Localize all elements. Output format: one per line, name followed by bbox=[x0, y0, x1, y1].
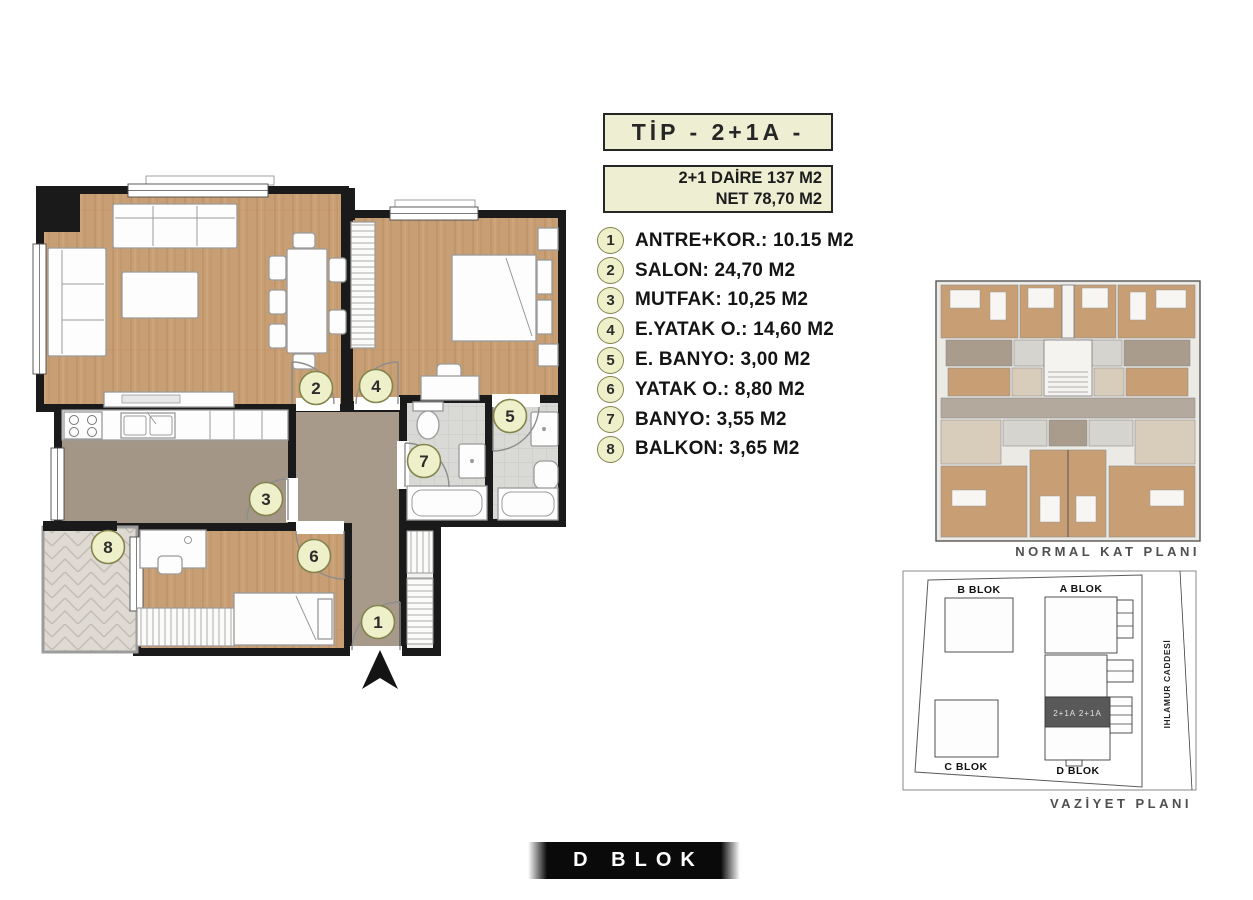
bathtub bbox=[407, 486, 487, 520]
legend-num: 5 bbox=[597, 347, 624, 374]
main-floor-plan: 1 2 3 4 5 6 7 8 bbox=[33, 176, 562, 689]
highlight-unit: 2+1A 2+1A bbox=[1045, 697, 1110, 727]
legend-label: ANTRE+KOR.: 10.15 M2 bbox=[635, 230, 854, 252]
block-a-label: A BLOK bbox=[1060, 583, 1103, 595]
legend-row: 6 YATAK O.: 8,80 M2 bbox=[597, 375, 897, 405]
key-plan: NORMAL KAT PLANI bbox=[936, 281, 1200, 559]
site-plan: B BLOK A BLOK 2+1A 2+1A D BLOK C BLOK IH… bbox=[903, 571, 1196, 811]
block-b-label: B BLOK bbox=[957, 584, 1000, 596]
svg-text:1: 1 bbox=[373, 613, 382, 632]
svg-text:2+1A 2+1A: 2+1A 2+1A bbox=[1053, 709, 1102, 718]
sofa-left bbox=[48, 248, 106, 356]
wall-step bbox=[341, 188, 355, 220]
block-d-label: D BLOK bbox=[1056, 765, 1099, 777]
stairwell bbox=[1044, 340, 1092, 396]
legend-row: 7 BANYO: 3,55 M2 bbox=[597, 405, 897, 435]
badge-8: 8 bbox=[92, 531, 125, 564]
legend-label: SALON: 24,70 M2 bbox=[635, 260, 795, 282]
kitchen-sink bbox=[121, 412, 175, 438]
block-b bbox=[945, 598, 1013, 652]
badge-7: 7 bbox=[408, 445, 441, 478]
room-legend: 1 ANTRE+KOR.: 10.15 M2 2 SALON: 24,70 M2… bbox=[597, 226, 897, 464]
legend-label: MUTFAK: 10,25 M2 bbox=[635, 289, 808, 311]
tv-unit bbox=[104, 392, 234, 407]
washbasin bbox=[459, 444, 485, 478]
wall-corner-column bbox=[36, 186, 80, 232]
block-name-label: D BLOK bbox=[573, 849, 704, 872]
legend-row: 1 ANTRE+KOR.: 10.15 M2 bbox=[597, 226, 897, 256]
area-line-2: NET 78,70 M2 bbox=[716, 189, 822, 210]
opening-bedroom bbox=[296, 521, 344, 534]
block-d-upper bbox=[1045, 655, 1107, 697]
badge-2: 2 bbox=[300, 372, 333, 405]
type-title: TİP - 2+1A - bbox=[632, 119, 805, 146]
toilet bbox=[534, 461, 558, 489]
wardrobe bbox=[351, 222, 375, 348]
wall-balcony-top bbox=[43, 521, 117, 531]
opening-entrance bbox=[350, 646, 402, 658]
block-c-label: C BLOK bbox=[944, 761, 987, 773]
svg-text:4: 4 bbox=[371, 377, 381, 396]
legend-row: 4 E.YATAK O.: 14,60 M2 bbox=[597, 315, 897, 345]
block-c bbox=[935, 700, 998, 757]
legend-num: 7 bbox=[597, 406, 624, 433]
legend-label: YATAK O.: 8,80 M2 bbox=[635, 379, 805, 401]
svg-text:8: 8 bbox=[103, 538, 112, 557]
road-edge bbox=[1180, 571, 1192, 790]
svg-text:7: 7 bbox=[419, 452, 428, 471]
legend-num: 4 bbox=[597, 317, 624, 344]
window-kitchen-left bbox=[51, 448, 64, 520]
entry-closet bbox=[407, 531, 433, 644]
coffee-table bbox=[122, 272, 198, 318]
block-a bbox=[1045, 597, 1117, 653]
legend-num: 1 bbox=[597, 227, 624, 254]
stove bbox=[64, 412, 102, 439]
badge-3: 3 bbox=[250, 483, 283, 516]
legend-label: E.YATAK O.: 14,60 M2 bbox=[635, 319, 834, 341]
block-d-lower bbox=[1045, 727, 1110, 760]
desk bbox=[140, 530, 206, 574]
window-salon-left bbox=[33, 244, 46, 374]
svg-text:5: 5 bbox=[505, 407, 514, 426]
badge-4: 4 bbox=[360, 370, 393, 403]
legend-num: 2 bbox=[597, 257, 624, 284]
window-bedroom-top bbox=[390, 207, 478, 220]
badge-6: 6 bbox=[298, 540, 331, 573]
street-label: IHLAMUR CADDESİ bbox=[1162, 640, 1172, 729]
window-salon-top bbox=[128, 184, 268, 197]
legend-label: BANYO: 3,55 M2 bbox=[635, 409, 787, 431]
legend-label: BALKON: 3,65 M2 bbox=[635, 438, 800, 460]
wardrobe bbox=[137, 608, 235, 646]
washbasin bbox=[531, 412, 558, 446]
legend-row: 2 SALON: 24,70 M2 bbox=[597, 256, 897, 286]
legend-num: 8 bbox=[597, 436, 624, 463]
block-name-band: D BLOK bbox=[528, 842, 740, 879]
svg-text:2: 2 bbox=[311, 379, 320, 398]
badge-5: 5 bbox=[494, 400, 527, 433]
site-plan-caption: VAZİYET PLANI bbox=[1050, 796, 1192, 811]
svg-text:6: 6 bbox=[309, 547, 318, 566]
svg-text:3: 3 bbox=[261, 490, 270, 509]
legend-row: 5 E. BANYO: 3,00 M2 bbox=[597, 345, 897, 375]
key-plan-caption: NORMAL KAT PLANI bbox=[1015, 544, 1200, 559]
legend-num: 3 bbox=[597, 287, 624, 314]
bathtub bbox=[498, 488, 558, 520]
badge-1: 1 bbox=[362, 606, 395, 639]
sofa-three-seat bbox=[113, 204, 237, 248]
legend-row: 3 MUTFAK: 10,25 M2 bbox=[597, 286, 897, 316]
type-title-box: TİP - 2+1A - bbox=[603, 113, 833, 151]
legend-label: E. BANYO: 3,00 M2 bbox=[635, 349, 811, 371]
area-info-box: 2+1 DAİRE 137 M2 NET 78,70 M2 bbox=[603, 165, 833, 213]
legend-row: 8 BALKON: 3,65 M2 bbox=[597, 435, 897, 465]
floorplan-page: 1 2 3 4 5 6 7 8 bbox=[0, 0, 1253, 900]
legend-num: 6 bbox=[597, 376, 624, 403]
single-bed bbox=[234, 593, 334, 645]
area-line-1: 2+1 DAİRE 137 M2 bbox=[678, 168, 822, 189]
